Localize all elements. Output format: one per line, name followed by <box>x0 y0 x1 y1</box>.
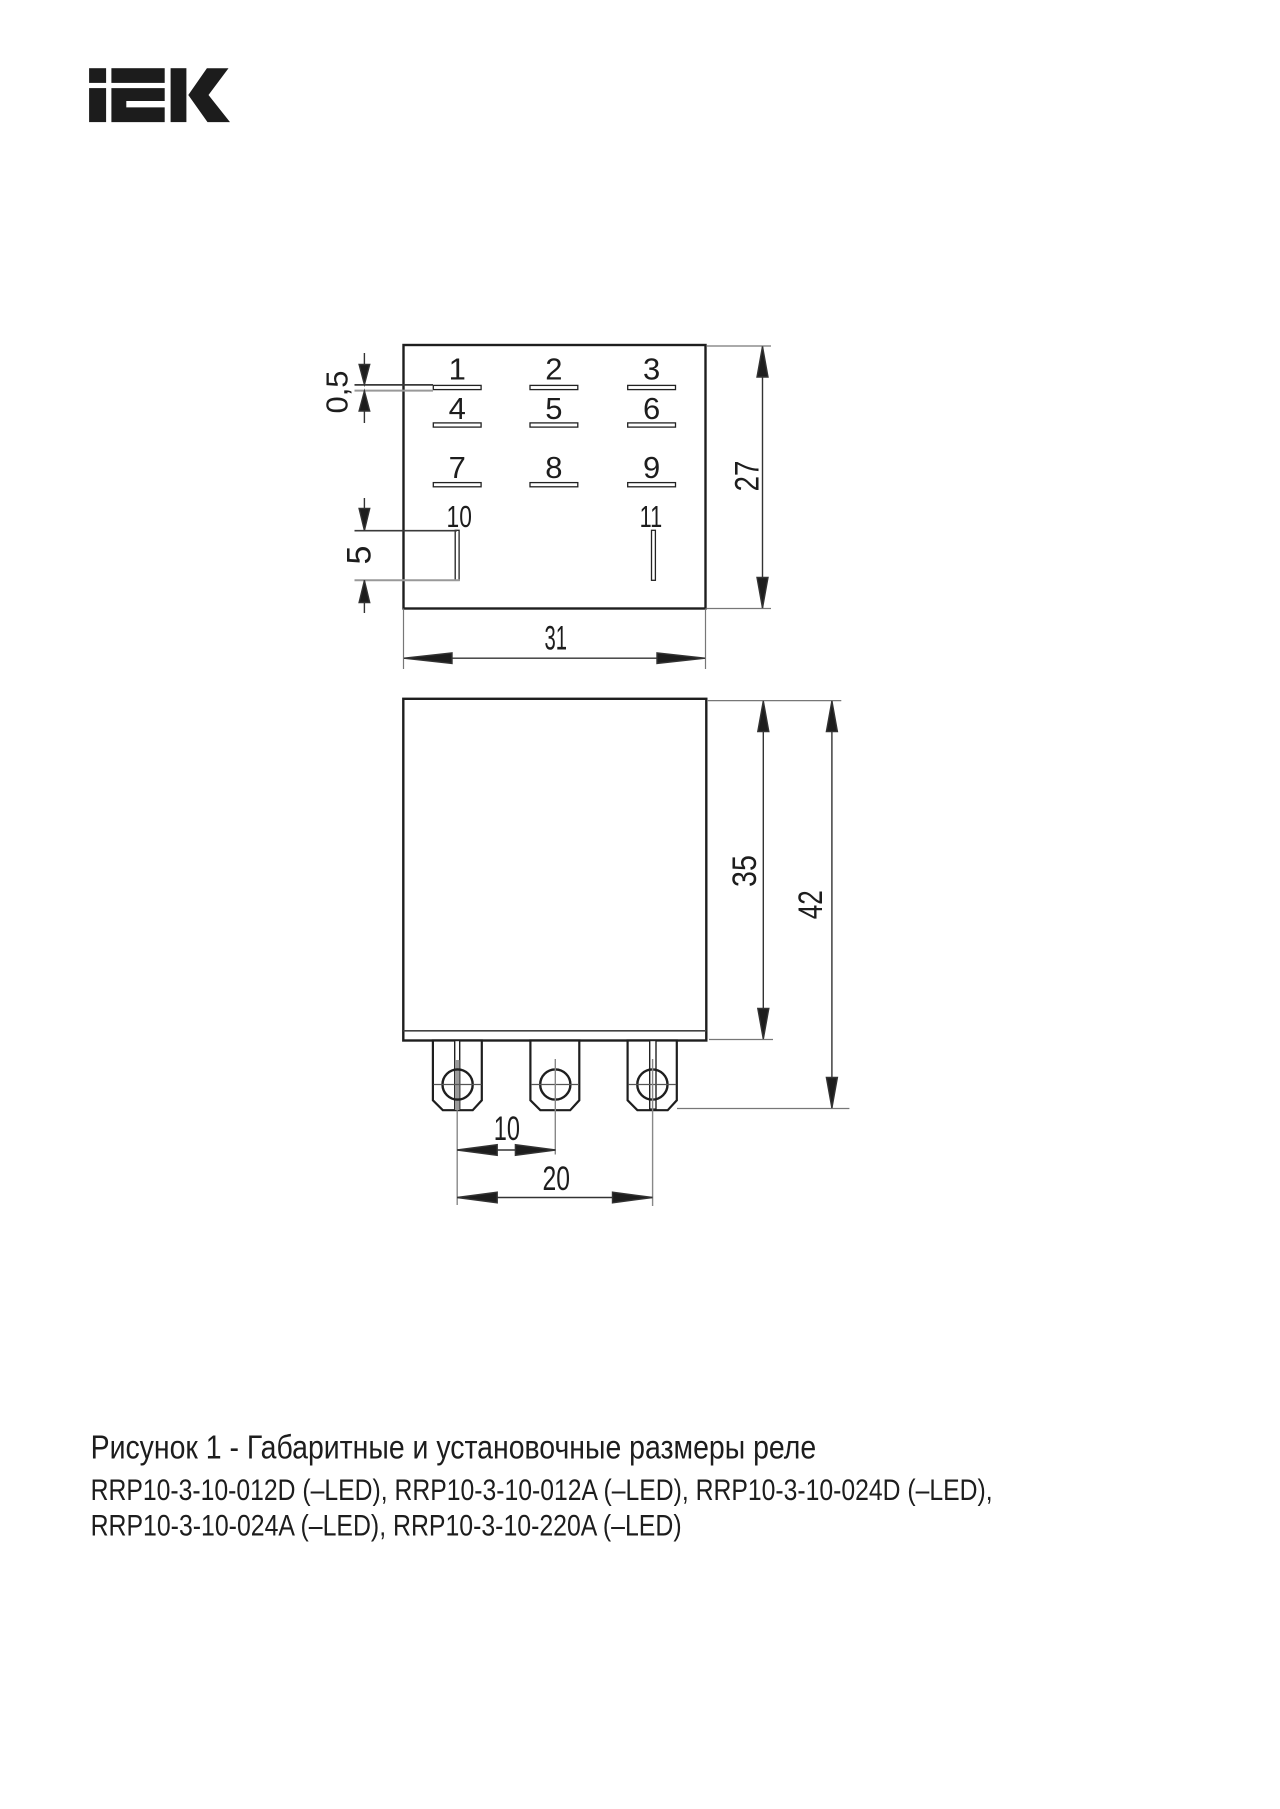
svg-text:RRP10-3-10-012D (–LED), RRP10-: RRP10-3-10-012D (–LED), RRP10-3-10-012A … <box>91 1474 993 1507</box>
svg-text:20: 20 <box>543 1160 571 1198</box>
svg-text:42: 42 <box>792 890 830 919</box>
svg-text:5: 5 <box>545 391 562 426</box>
svg-text:RRP10-3-10-024A (–LED), RRP10-: RRP10-3-10-024A (–LED), RRP10-3-10-220A … <box>91 1510 682 1543</box>
svg-text:4: 4 <box>449 391 466 426</box>
svg-text:1: 1 <box>449 352 466 387</box>
svg-text:8: 8 <box>545 450 562 485</box>
svg-text:9: 9 <box>643 450 660 485</box>
svg-text:35: 35 <box>726 855 764 887</box>
svg-text:27: 27 <box>729 461 767 492</box>
svg-text:6: 6 <box>643 391 660 426</box>
svg-text:Рисунок 1 - Габаритные и устан: Рисунок 1 - Габаритные и установочные ра… <box>91 1429 817 1466</box>
svg-text:2: 2 <box>545 352 562 387</box>
svg-text:10: 10 <box>447 499 472 534</box>
svg-text:7: 7 <box>449 450 466 485</box>
svg-text:10: 10 <box>494 1110 520 1148</box>
svg-text:0,5: 0,5 <box>320 370 355 413</box>
svg-text:11: 11 <box>640 499 663 534</box>
svg-text:5: 5 <box>341 546 379 565</box>
svg-text:3: 3 <box>643 352 660 387</box>
svg-text:31: 31 <box>544 620 567 658</box>
